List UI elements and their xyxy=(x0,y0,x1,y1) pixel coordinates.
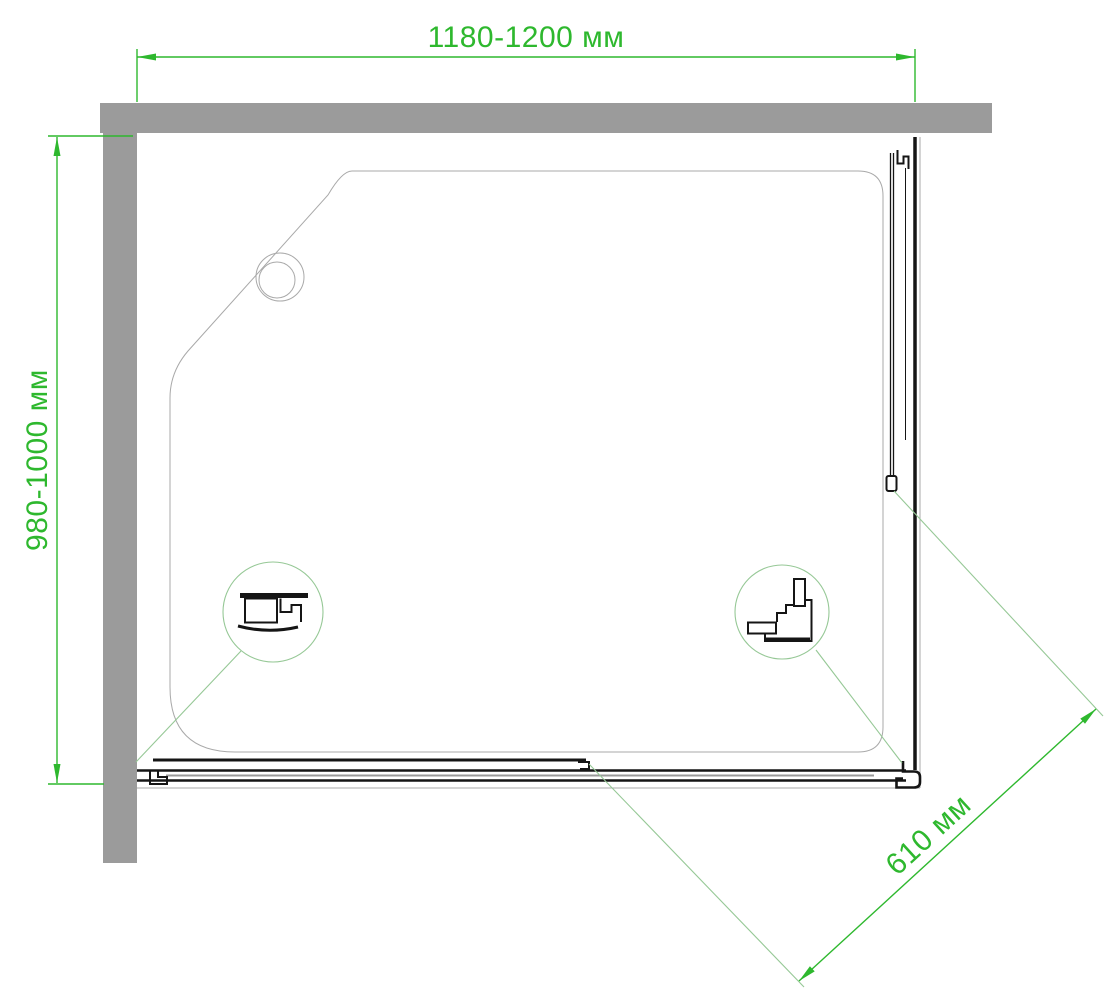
dimension-depth-label: 980-1000 мм xyxy=(21,369,54,551)
panel-handle xyxy=(887,476,897,491)
dimension-line xyxy=(799,709,1096,981)
dimension-door-opening: 610 мм xyxy=(589,491,1103,987)
enclosure-outline xyxy=(137,137,920,788)
rail-profile-detail-icon xyxy=(238,596,308,631)
left-wall-profile xyxy=(150,770,167,784)
shower-enclosure-diagram: 1180-1200 мм 980-1000 мм 610 мм xyxy=(0,0,1120,1000)
left-wall xyxy=(103,103,137,863)
dimension-width: 1180-1200 мм xyxy=(137,21,915,102)
top-wall xyxy=(100,103,992,133)
fixed-glass-panel xyxy=(887,153,897,491)
arrow-right-icon xyxy=(896,54,915,61)
leader-line-left xyxy=(136,651,241,762)
callout-rail-profile xyxy=(136,562,323,762)
corner-profile-detail-icon xyxy=(748,579,812,641)
door-end-hook xyxy=(578,762,589,769)
arrow-left-icon xyxy=(137,54,156,61)
arrow-down-icon xyxy=(54,764,61,783)
detail-circle-left xyxy=(223,562,323,662)
technical-drawing-canvas: 1180-1200 мм 980-1000 мм 610 мм xyxy=(0,0,1120,1000)
shower-tray-outline xyxy=(170,171,883,752)
extension-leader-from-door xyxy=(589,764,804,987)
dimension-door-opening-label: 610 мм xyxy=(880,788,978,882)
extension-leader-from-panel xyxy=(894,491,1103,716)
dimension-width-label: 1180-1200 мм xyxy=(428,21,625,54)
drain-icon xyxy=(256,253,304,301)
arrow-up-icon xyxy=(54,137,61,156)
top-wall-profile-hook xyxy=(898,150,909,169)
bottom-door-assembly xyxy=(137,760,906,784)
leader-line-right xyxy=(816,650,902,763)
callout-corner-profile xyxy=(735,565,902,763)
